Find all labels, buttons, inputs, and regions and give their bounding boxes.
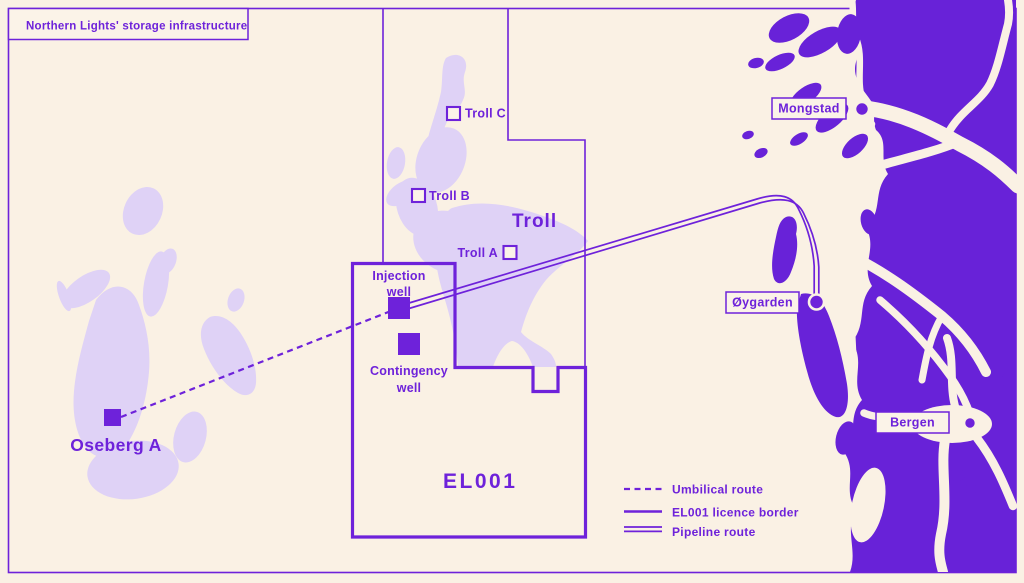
troll-field-label: Troll <box>512 211 557 232</box>
troll-a-label: Troll A <box>457 246 498 260</box>
contingency-well-label-line1: Contingency <box>370 364 448 378</box>
troll-a-marker <box>504 246 517 259</box>
troll-c-marker <box>447 107 460 120</box>
legend-licence-border-label: EL001 licence border <box>672 506 799 520</box>
injection-well-label-line1: Injection <box>372 269 425 283</box>
injection-well-label-line2: well <box>386 285 411 299</box>
injection-well-marker <box>388 297 410 319</box>
oygarden-label: Øygarden <box>726 292 799 313</box>
oygarden-dot <box>809 295 824 310</box>
oseberg-a-marker <box>104 409 121 426</box>
mongstad-dot <box>855 102 869 116</box>
troll-c-label: Troll C <box>465 107 506 121</box>
infographic-map: Mongstad Øygarden Bergen Troll C Troll B… <box>0 0 1024 583</box>
troll-b-marker <box>412 189 425 202</box>
bergen-dot <box>964 417 977 430</box>
contingency-well-marker <box>398 333 420 355</box>
oygarden-label-text: Øygarden <box>732 296 793 310</box>
legend-umbilical-label: Umbilical route <box>672 483 763 497</box>
troll-b-label: Troll B <box>429 189 470 203</box>
el001-label: EL001 <box>443 470 517 493</box>
mongstad-label-text: Mongstad <box>778 102 839 116</box>
page-title: Northern Lights' storage infrastructure <box>26 21 247 33</box>
mongstad-label: Mongstad <box>772 98 846 119</box>
map-canvas: Mongstad Øygarden Bergen Troll C Troll B… <box>0 0 1024 583</box>
bergen-label: Bergen <box>876 412 949 433</box>
oseberg-a-label: Oseberg A <box>70 435 161 455</box>
contingency-well-label-line2: well <box>396 381 421 395</box>
bergen-label-text: Bergen <box>890 416 935 430</box>
title-box: Northern Lights' storage infrastructure <box>9 9 249 40</box>
legend-pipeline-label: Pipeline route <box>672 525 756 539</box>
